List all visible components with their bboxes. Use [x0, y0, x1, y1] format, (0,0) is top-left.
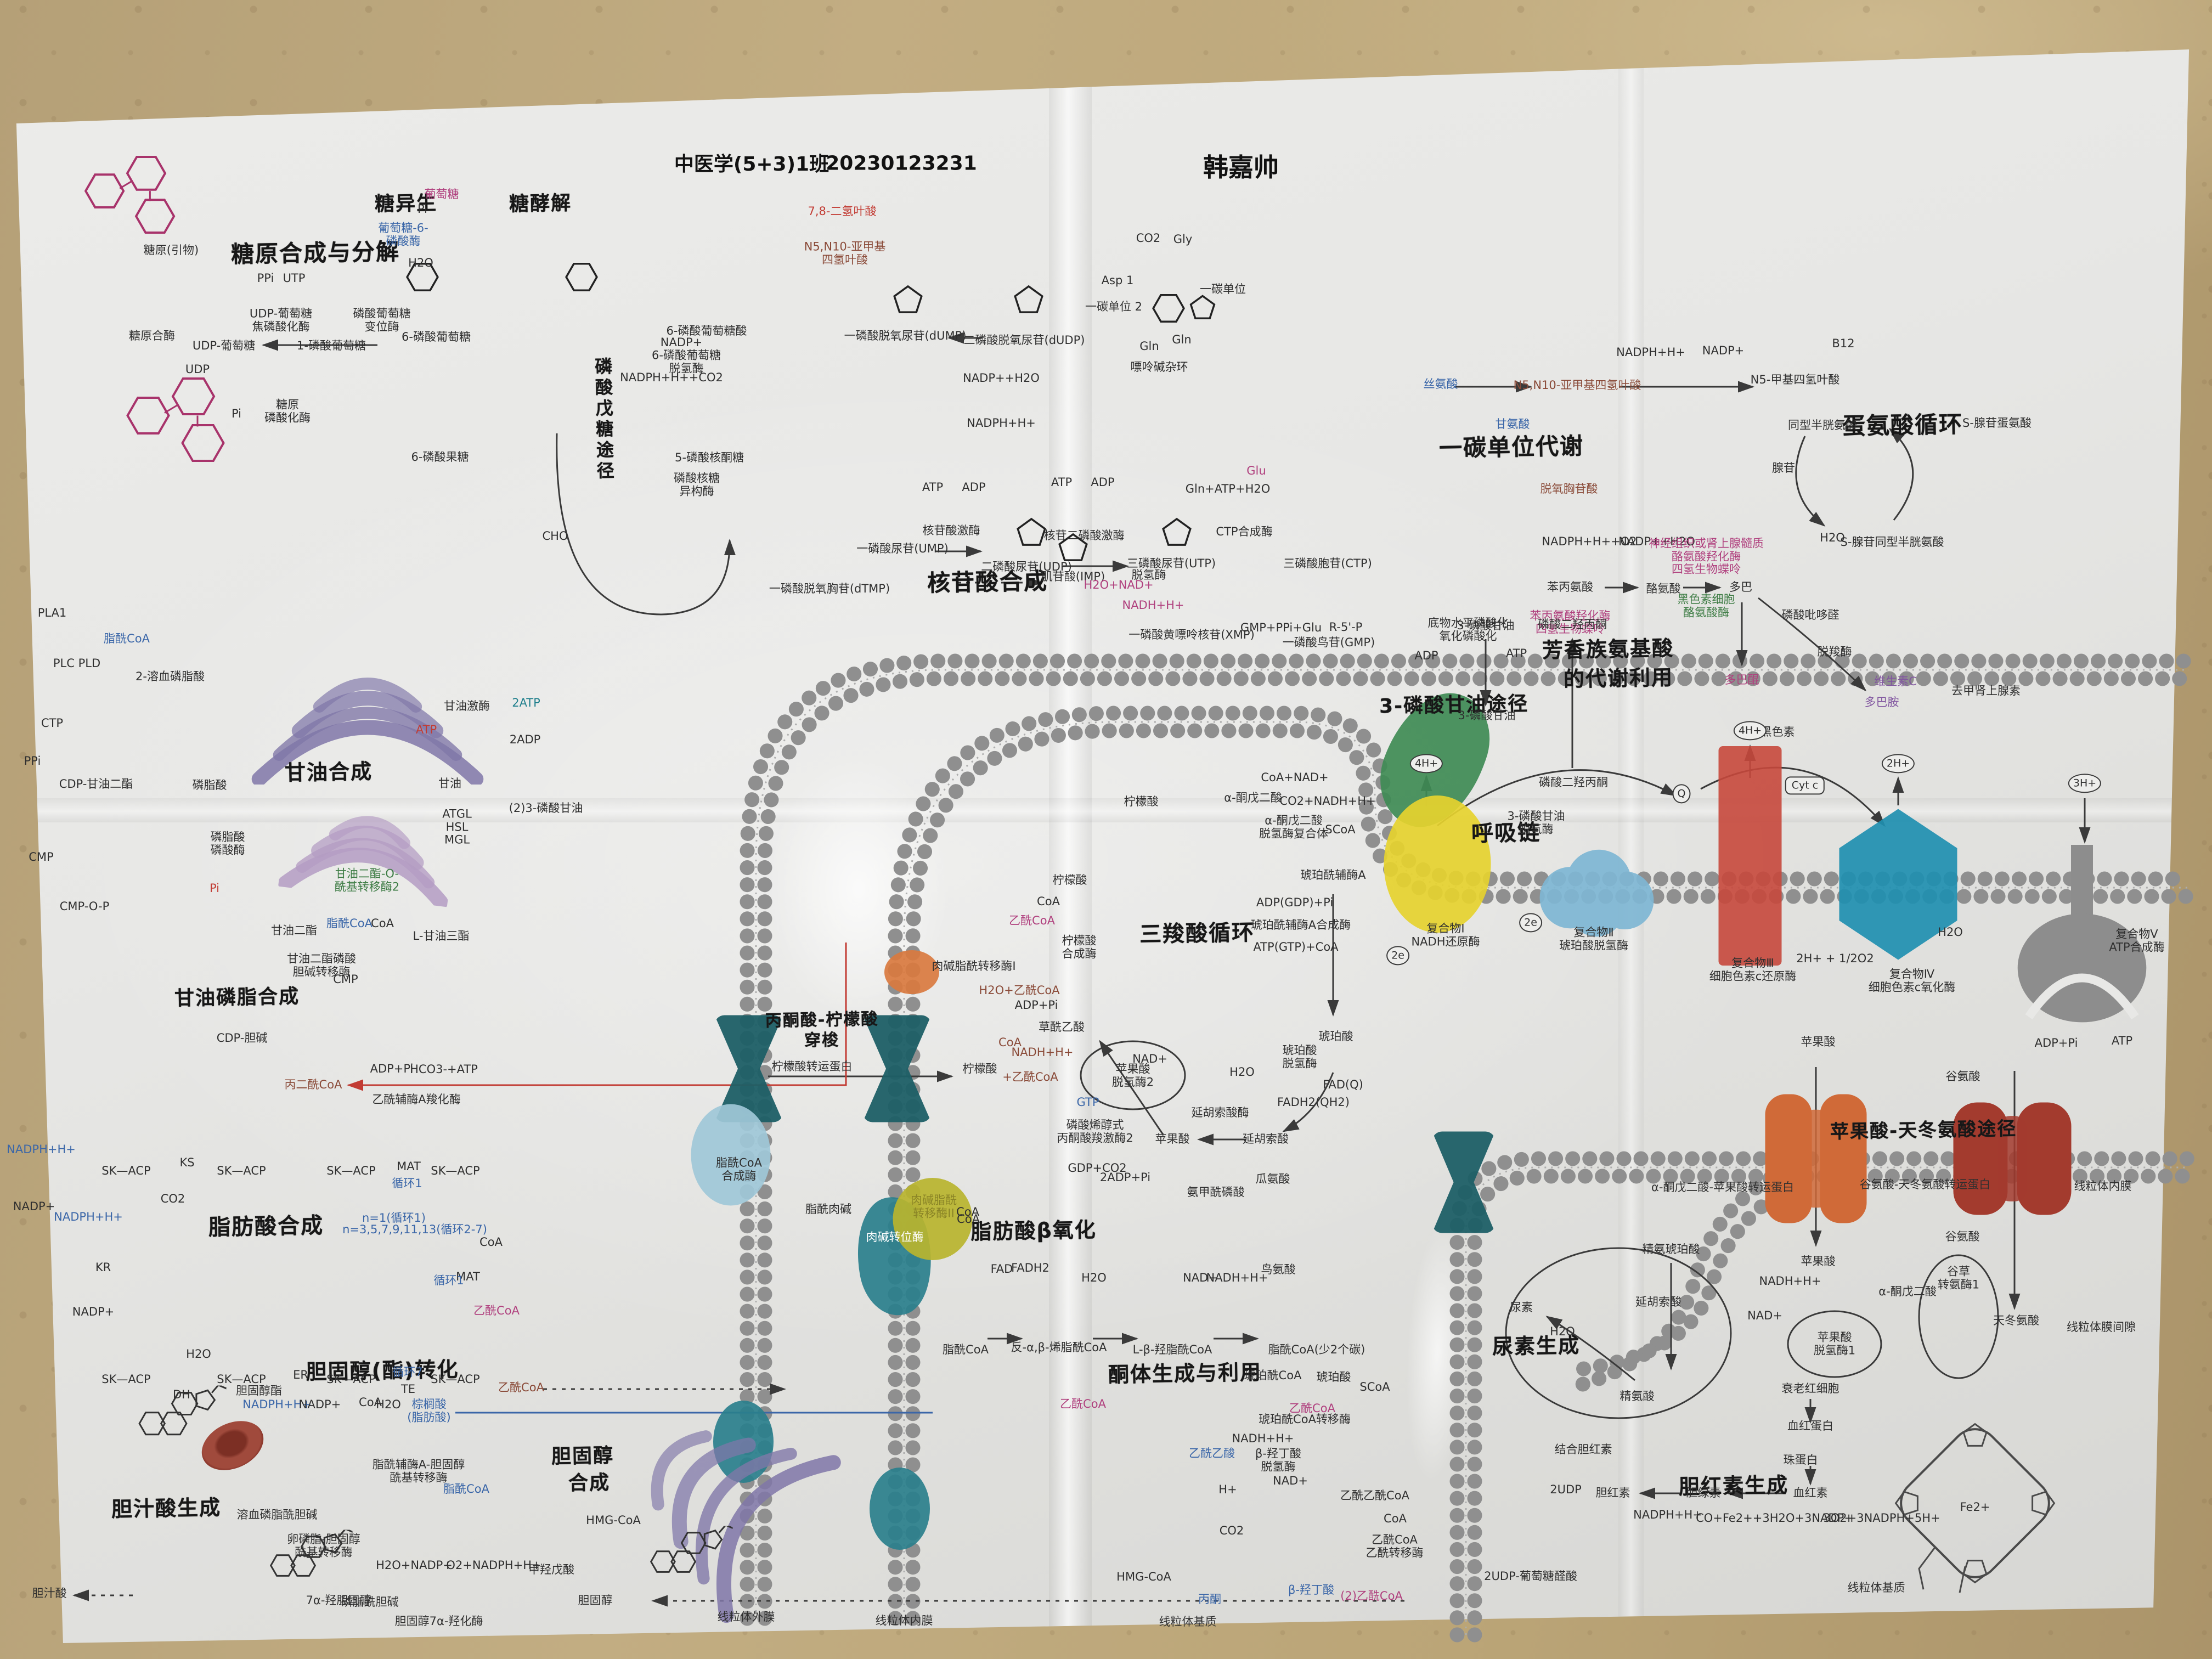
- diagram-label: 甘油二酯磷酸胆碱转移酶: [287, 952, 356, 978]
- diagram-label: 磷酸烯醇式丙酮酸羧激酶2: [1057, 1119, 1133, 1144]
- diagram-label: 2ADP: [510, 733, 541, 747]
- diagram-label: CoA: [1384, 1513, 1407, 1526]
- diagram-label: ADP: [962, 481, 985, 494]
- diagram-label: 瓜氨酸: [1256, 1173, 1290, 1186]
- diagram-label: 多巴: [1729, 581, 1752, 594]
- diagram-label: 复合物Ⅳ细胞色素c氧化酶: [1869, 968, 1956, 994]
- diagram-label: 3-磷酸甘油脱氢酶: [1508, 810, 1565, 836]
- diagram-label: NADPH+H++CO2: [620, 371, 723, 385]
- diagram-label: 丙二酰CoA: [285, 1079, 342, 1092]
- diagram-label: 柠檬酸: [963, 1063, 997, 1076]
- diagram-label: PLA1: [38, 607, 67, 620]
- diagram-label: H+: [1218, 1483, 1237, 1497]
- diagram-label: 乙酰辅酶A羧化酶: [372, 1093, 460, 1107]
- diagram-label: CDP-甘油二酯: [59, 778, 133, 791]
- section-heading: 穿梭: [804, 1026, 840, 1051]
- diagram-label: Cyt c: [1785, 776, 1825, 794]
- diagram-label: 1-磷酸葡萄糖: [297, 340, 366, 353]
- diagram-label: S-腺苷蛋氨酸: [1962, 417, 2032, 430]
- diagram-label: UDP: [185, 363, 210, 376]
- diagram-label: 乙酰CoA: [498, 1381, 544, 1395]
- diagram-label: 脂酰CoA: [943, 1344, 989, 1357]
- diagram-label: 乙酰CoA: [1060, 1398, 1106, 1411]
- diagram-label: FADH2(QH2): [1277, 1096, 1350, 1109]
- diagram-label: 甘油二酯-O-酰基转移酶2: [335, 867, 399, 893]
- diagram-label: CoA: [957, 1213, 980, 1226]
- diagram-label: ATP: [1051, 476, 1072, 489]
- diagram-label: KS: [179, 1156, 194, 1170]
- diagram-label: CO2: [1220, 1525, 1244, 1538]
- diagram-label: 葡萄糖-6-磷酸酶: [378, 222, 428, 247]
- diagram-label: SCoA: [1325, 823, 1355, 837]
- diagram-label: GTP: [1076, 1096, 1099, 1109]
- diagram-label: 线粒体内膜: [876, 1615, 933, 1628]
- diagram-label: 乙酰CoA: [473, 1305, 520, 1318]
- diagram-label: α-酮戊二酸-苹果酸转运蛋白: [1651, 1181, 1794, 1194]
- diagram-label: Pi: [417, 203, 427, 216]
- diagram-label: 3H+: [2068, 774, 2101, 793]
- diagram-label: 溶血磷脂酰胆碱: [237, 1509, 318, 1522]
- diagram-label: NAD+: [1747, 1310, 1782, 1323]
- diagram-label: 糖原合酶: [129, 330, 175, 343]
- diagram-label: ADP+Pi: [2035, 1037, 2078, 1050]
- diagram-label: 6-磷酸果糖: [411, 451, 469, 464]
- diagram-label: H2O+NAD+: [1084, 579, 1153, 592]
- diagram-label: H2O: [408, 257, 433, 270]
- diagram-label: 胆固醇: [578, 1594, 613, 1607]
- diagram-label: 脂酰CoA: [443, 1483, 489, 1496]
- diagram-label: N5,N10-亚甲基四氢叶酸: [804, 240, 886, 266]
- diagram-label: NADH+H+: [1206, 1272, 1268, 1285]
- diagram-label: SK—ACP: [326, 1373, 375, 1386]
- diagram-label: NADH+H+: [1759, 1275, 1821, 1288]
- diagram-label: ER: [293, 1369, 308, 1382]
- diagram-label: NADPH+H+: [7, 1143, 76, 1156]
- diagram-label: α-酮戊二酸脱氢酶复合体: [1259, 814, 1328, 840]
- diagram-label: 一磷酸鸟苷(GMP): [1283, 636, 1375, 650]
- section-heading: 糖原合成与分解: [230, 233, 400, 269]
- diagram-label: 柠檬酸: [1124, 795, 1159, 809]
- diagram-label: 琥珀酸: [1317, 1371, 1351, 1384]
- diagram-label: Pi: [232, 408, 241, 421]
- diagram-label: 2-溶血磷脂酸: [136, 670, 205, 684]
- section-heading: 的代谢利用: [1564, 661, 1674, 692]
- diagram-label: 柠檬酸: [1053, 874, 1087, 887]
- diagram-label: 卵磷脂-胆固醇酰基转移酶: [287, 1533, 360, 1559]
- diagram-label: HMG-CoA: [1116, 1571, 1171, 1584]
- diagram-label: 延胡索酸: [1243, 1133, 1289, 1146]
- diagram-label: 苹果酸脱氢酶2: [1112, 1063, 1154, 1088]
- diagram-label: 核苷酸激酶: [923, 524, 980, 538]
- diagram-label: Glu: [1246, 465, 1266, 478]
- diagram-label: 谷氨酸: [1946, 1070, 1980, 1084]
- diagram-label: CMP-O-P: [60, 900, 110, 913]
- diagram-label: 脂酰CoA: [326, 917, 373, 930]
- diagram-label: 3O2+3NADPH+5H+: [1823, 1512, 1940, 1525]
- diagram-label: 尿素: [1510, 1301, 1533, 1314]
- diagram-label: 2ADP+Pi: [1100, 1171, 1150, 1184]
- diagram-label: 2ATP: [512, 697, 540, 710]
- diagram-label: 多巴胺: [1865, 696, 1899, 709]
- diagram-label: FADH2: [1011, 1262, 1049, 1275]
- diagram-label: ATP: [922, 481, 943, 494]
- diagram-label: SK—ACP: [101, 1373, 150, 1386]
- diagram-label: NADPH+H+: [1633, 1509, 1702, 1522]
- section-heading: 苹果酸-天冬氨酸途径: [1830, 1114, 2017, 1144]
- diagram-label: 2e: [1386, 946, 1409, 965]
- diagram-label: CTP合成酶: [1216, 526, 1272, 539]
- diagram-label: 一碳单位 2: [1085, 301, 1142, 314]
- diagram-label: 胆红素: [1596, 1487, 1630, 1500]
- diagram-label: 循环1: [392, 1177, 422, 1190]
- diagram-label: FAD(Q): [1323, 1079, 1363, 1092]
- diagram-label: HMG-CoA: [586, 1514, 641, 1527]
- diagram-label: 乙酰乙酸: [1189, 1447, 1235, 1460]
- diagram-label: CoA: [998, 1036, 1022, 1049]
- diagram-label: 胆固醇酯: [236, 1385, 282, 1398]
- diagram-label: 血红蛋白: [1787, 1420, 1833, 1433]
- diagram-label: NADH+H+: [1122, 599, 1184, 612]
- diagram-label: 2H+ + 1/2O2: [1796, 952, 1874, 966]
- diagram-label: 5-磷酸核酮糖: [675, 452, 744, 465]
- diagram-label: Gly: [1173, 233, 1193, 246]
- diagram-label: CO2: [161, 1193, 185, 1206]
- diagram-label: 苹果酸: [1155, 1133, 1190, 1146]
- diagram-label: 谷氨酸-天冬氨酸转运蛋白: [1860, 1178, 1991, 1192]
- diagram-label: CO2: [1136, 232, 1161, 245]
- diagram-label: CoA: [371, 917, 394, 930]
- diagram-label: B12: [1832, 337, 1854, 351]
- diagram-label: 3-磷酸甘油: [1458, 709, 1516, 723]
- diagram-label: H2O: [1550, 1325, 1575, 1339]
- diagram-label: 一碳单位: [1200, 283, 1246, 296]
- diagram-label: 草酰乙酸: [1039, 1021, 1085, 1034]
- diagram-label: 7,8-二氢叶酸: [808, 205, 877, 218]
- section-heading: 甘油合成: [285, 754, 373, 786]
- diagram-label: 2e: [1519, 913, 1542, 932]
- diagram-label: NADPH+H+: [967, 417, 1036, 430]
- diagram-label: 乙酰乙酰CoA: [1340, 1489, 1409, 1503]
- section-heading: 芳香族氨基酸: [1542, 631, 1674, 663]
- diagram-label: NADP+: [1702, 345, 1745, 358]
- diagram-label: 腺苷: [1772, 462, 1795, 475]
- diagram-label: 琥珀酰辅酶A: [1300, 869, 1365, 882]
- diagram-label: 一磷酸尿苷(UMP): [856, 543, 949, 556]
- section-heading: 脂肪酸β氧化: [970, 1213, 1097, 1245]
- diagram-label: α-酮戊二酸: [1878, 1285, 1936, 1299]
- diagram-label: 血红素: [1793, 1487, 1828, 1500]
- diagram-label: NADP++H2O: [963, 372, 1040, 385]
- diagram-label: 胆绿素: [1686, 1487, 1721, 1500]
- section-heading: 胆汁酸生成: [111, 1491, 222, 1522]
- diagram-label: 二磷酸脱氧尿苷(dUDP): [964, 334, 1085, 347]
- diagram-label: 甘油激酶: [444, 700, 490, 713]
- diagram-label: 谷草转氨酶1: [1938, 1265, 1979, 1291]
- diagram-label: 嘌呤碱杂环: [1131, 361, 1188, 374]
- diagram-label: H2O: [376, 1398, 401, 1412]
- diagram-label: ADP(GDP)+Pi: [1256, 896, 1333, 910]
- diagram-label: CHO: [543, 530, 568, 543]
- diagram-label: 精氨酸: [1620, 1390, 1655, 1403]
- diagram-label: 胆固醇7α-羟化酶: [395, 1615, 483, 1628]
- diagram-label: 2H+: [1882, 754, 1915, 773]
- diagram-label: 维生素C: [1874, 675, 1917, 689]
- diagram-label: R-5'-P: [1329, 621, 1363, 634]
- diagram-label: 鸟氨酸: [1261, 1263, 1296, 1277]
- diagram-label: +乙酰CoA: [1002, 1071, 1058, 1084]
- diagram-label: 6-磷酸葡萄糖: [402, 331, 471, 344]
- diagram-label: KR: [95, 1261, 111, 1274]
- diagram-label: NADP+: [13, 1200, 55, 1214]
- diagram-label: 苹果酸: [1801, 1255, 1836, 1268]
- diagram-label: CO2+NADH+H+: [1279, 795, 1375, 808]
- diagram-label: 葡萄糖: [425, 188, 459, 201]
- diagram-label: H2O: [1081, 1272, 1107, 1285]
- diagram-label: ADP: [1091, 476, 1114, 489]
- diagram-label: (2)乙酰CoA: [1340, 1590, 1403, 1603]
- diagram-label: H2O: [186, 1348, 211, 1361]
- diagram-label: 磷酸二羟丙酮: [1538, 618, 1607, 631]
- section-heading: 酮体生成与利用: [1108, 1355, 1262, 1388]
- section-heading: 蛋氨酸循环: [1842, 406, 1963, 442]
- diagram-label: L-甘油三酯: [413, 930, 470, 943]
- diagram-label: GMP+PPi+Glu: [1240, 622, 1322, 635]
- diagram-label: 琥珀酰CoA: [1244, 1369, 1302, 1383]
- diagram-label: 磷酸二羟丙酮: [1539, 776, 1608, 789]
- diagram-label: CDP-胆碱: [217, 1032, 268, 1045]
- diagram-label: 氨甲酰磷酸: [1187, 1186, 1245, 1199]
- diagram-label: 复合物Ⅱ琥珀酸脱氢酶: [1559, 926, 1628, 952]
- diagram-label: 线粒体膜间隙: [2067, 1321, 2136, 1334]
- diagram-label: ATP: [1506, 647, 1527, 661]
- diagram-label: SK—ACP: [101, 1165, 150, 1178]
- diagram-label: 循环1: [433, 1274, 464, 1288]
- diagram-label: 丝氨酸: [1424, 378, 1458, 391]
- diagram-label: 核苷二磷酸激酶: [1044, 529, 1125, 543]
- diagram-label: ATP: [416, 724, 437, 737]
- diagram-label: 黑色素细胞酪氨酸酶: [1678, 593, 1735, 619]
- diagram-label: 磷脂酸磷酸酶: [211, 831, 245, 856]
- diagram-label: SK—ACP: [326, 1165, 375, 1178]
- diagram-label: PLC PLD: [53, 657, 100, 670]
- diagram-label: 甘油: [438, 777, 461, 791]
- diagram-label: 神经组织或肾上腺髓质酪氨酸羟化酶四氢生物蝶呤: [1649, 538, 1764, 577]
- diagram-label: α-酮戊二酸: [1224, 792, 1282, 805]
- diagram-label: UDP-葡萄糖焦磷酸化酶: [250, 307, 312, 333]
- diagram-label: 延胡索酸: [1635, 1296, 1681, 1309]
- diagram-label: 精氨琥珀酸: [1643, 1243, 1700, 1256]
- diagram-label: 天冬氨酸: [1993, 1314, 2039, 1328]
- diagram-label: 脂酰肉碱: [805, 1203, 851, 1216]
- diagram-label: 线粒体基质: [1848, 1582, 1905, 1595]
- diagram-label: 3-磷酸甘油: [1457, 619, 1515, 633]
- diagram-label: CMP: [29, 851, 53, 864]
- diagram-label: 磷脂酸: [193, 779, 227, 792]
- diagram-label: CTP: [41, 717, 63, 730]
- diagram-label: Asp 1: [1102, 274, 1134, 287]
- diagram-label: 复合物ⅠNADH还原酶: [1411, 922, 1480, 948]
- diagram-label: 苯丙氨酸: [1547, 581, 1593, 594]
- diagram-label: H2O: [1229, 1066, 1255, 1079]
- diagram-label: 脂酰CoA合成酶: [716, 1156, 762, 1182]
- diagram-label: 乙酰CoA乙酰转移酶: [1366, 1533, 1424, 1559]
- diagram-label: β-羟丁酸脱氢酶: [1255, 1447, 1301, 1473]
- diagram-label: TE: [401, 1383, 415, 1396]
- diagram-label: 苹果酸: [1801, 1036, 1836, 1049]
- diagram-label: (2)3-磷酸甘油: [509, 802, 583, 815]
- diagram-label: ATP(GTP)+CoA: [1253, 941, 1338, 954]
- labels-layer: 糖原合成与分解糖异生糖酵解磷酸戊糖途径核苷酸合成一碳单位代谢蛋氨酸循环芳香族氨基…: [0, 0, 2212, 1659]
- diagram-label: NADPH+H+: [1616, 346, 1685, 359]
- photo-of-metabolic-poster: 韩嘉帅 中医学(5+3)1班 20230123231 糖原合成与分解糖异生糖酵解…: [0, 0, 2212, 1659]
- diagram-label: Q: [1673, 784, 1691, 803]
- diagram-label: CoA+NAD+: [1261, 771, 1328, 785]
- diagram-label: SK—ACP: [431, 1373, 479, 1386]
- diagram-label: n=3,5,7,9,11,13(循环2-7): [342, 1223, 487, 1237]
- section-heading: 糖酵解: [509, 187, 572, 217]
- diagram-label: ADP+Pi: [370, 1063, 414, 1076]
- diagram-label: 珠蛋白: [1784, 1454, 1818, 1467]
- diagram-label: NADP+: [661, 336, 703, 349]
- diagram-label: 棕榈酸(脂肪酸): [407, 1398, 450, 1424]
- diagram-label: 延胡索酸酶: [1192, 1107, 1249, 1120]
- diagram-label: 三磷酸胞苷(CTP): [1283, 557, 1372, 571]
- diagram-label: 磷酸吡哆醛: [1782, 609, 1839, 622]
- section-heading: 脂肪酸合成: [208, 1207, 324, 1242]
- diagram-label: NADH+H+: [1232, 1432, 1294, 1446]
- section-heading: 甘油磷脂合成: [174, 980, 300, 1011]
- diagram-label: SCoA: [1359, 1381, 1390, 1394]
- diagram-label: H2O+NADP+: [376, 1559, 453, 1572]
- diagram-label: 柠檬酸合成酶: [1062, 934, 1097, 960]
- diagram-label: N5-甲基四氢叶酸: [1751, 374, 1840, 387]
- diagram-label: HCO3-+ATP: [410, 1063, 478, 1076]
- diagram-label: H2O+乙酰CoA: [979, 984, 1059, 997]
- diagram-label: Gln: [1139, 340, 1159, 353]
- diagram-label: SK—ACP: [217, 1373, 266, 1386]
- diagram-label: CoA: [479, 1236, 503, 1249]
- diagram-label: 肉碱转位酶: [866, 1231, 924, 1244]
- diagram-label: Gln: [1172, 334, 1191, 347]
- diagram-label: 结合胆红素: [1555, 1443, 1612, 1457]
- section-heading: 三羧酸循环: [1139, 915, 1255, 949]
- section-heading: 胆固醇: [551, 1440, 614, 1469]
- diagram-label: 循环7: [392, 1366, 422, 1379]
- diagram-label: ADP+Pi: [1015, 999, 1058, 1012]
- diagram-label: PPi: [24, 755, 41, 768]
- diagram-label: 线粒体基质: [1159, 1616, 1217, 1629]
- diagram-label: 糖原(引物): [144, 244, 199, 257]
- diagram-label: SK—ACP: [217, 1165, 266, 1178]
- diagram-label: 线粒体外膜: [718, 1611, 775, 1624]
- diagram-label: ATGLHSLMGL: [442, 808, 472, 847]
- diagram-label: N5,N10-亚甲基四氢叶酸: [1514, 379, 1641, 392]
- diagram-label: ADP: [1414, 650, 1438, 663]
- diagram-label: L-β-羟脂酰CoA: [1133, 1344, 1212, 1357]
- diagram-label: 柠檬酸转运蛋白: [772, 1060, 853, 1074]
- diagram-label: 琥珀酰辅酶A合成酶: [1251, 919, 1351, 932]
- diagram-label: 乙酰CoA: [1009, 915, 1055, 928]
- section-heading: 磷酸戊糖途径: [590, 357, 617, 483]
- diagram-label: 反-α,β-烯脂酰CoA: [1011, 1341, 1107, 1355]
- diagram-label: FAD: [991, 1263, 1013, 1276]
- diagram-label: Fe2+: [1960, 1501, 1990, 1514]
- diagram-label: NADPH+H+: [54, 1211, 123, 1224]
- diagram-label: 4H+: [1410, 754, 1443, 773]
- diagram-label: 2UDP-葡萄糖醛酸: [1484, 1570, 1577, 1583]
- diagram-label: 多巴醌: [1725, 674, 1759, 687]
- diagram-label: NAD+: [1273, 1475, 1308, 1488]
- diagram-label: 磷酸核糖异构酶: [674, 472, 720, 498]
- diagram-label: 脂酰辅酶A-胆固醇酰基转移酶: [373, 1458, 465, 1484]
- diagram-label: 谷氨酸: [1945, 1231, 1980, 1244]
- diagram-label: 胆汁酸: [32, 1587, 67, 1600]
- diagram-label: NADP+: [72, 1306, 115, 1319]
- diagram-label: 乙酰CoA: [1289, 1402, 1335, 1415]
- diagram-label: Pi: [210, 882, 219, 895]
- diagram-label: 肉碱脂酰转移酶I: [932, 960, 1015, 973]
- diagram-label: 2UDP: [1550, 1483, 1582, 1497]
- diagram-label: UTP: [283, 272, 306, 285]
- diagram-label: 一磷酸脱氧尿苷(dUMP): [844, 330, 967, 343]
- diagram-label: 7α-羟胆固醇: [306, 1594, 371, 1607]
- diagram-label: MAT: [397, 1160, 421, 1173]
- diagram-label: 肉碱脂酰转移酶II: [911, 1194, 957, 1220]
- diagram-label: 同型半胱氨酸: [1788, 419, 1857, 432]
- diagram-label: 衰老红细胞: [1782, 1383, 1839, 1396]
- diagram-label: 琥珀酸脱氢酶: [1283, 1044, 1317, 1070]
- diagram-label: 去甲肾上腺素: [1951, 685, 2021, 698]
- diagram-label: 一磷酸脱氧胸苷(dTMP): [769, 583, 890, 596]
- section-heading: 一碳单位代谢: [1438, 427, 1584, 464]
- diagram-label: 甘氨酸: [1496, 418, 1530, 431]
- diagram-label: S-腺苷同型半胱氨酸: [1841, 536, 1944, 549]
- diagram-label: 一磷酸黄嘌呤核苷(XMP): [1128, 629, 1255, 642]
- diagram-label: O2+NADPH+H+: [446, 1559, 541, 1572]
- diagram-label: H2O: [1938, 926, 1963, 939]
- diagram-label: DH: [173, 1389, 190, 1402]
- diagram-label: 线粒体内膜: [2074, 1180, 2132, 1193]
- diagram-label: 脱羧酶: [1818, 646, 1852, 659]
- diagram-label: 磷酸葡萄糖变位酶: [353, 307, 411, 333]
- diagram-label: 脂酰CoA(少2个碳): [1268, 1344, 1365, 1357]
- diagram-label: 复合物Ⅲ细胞色素c还原酶: [1709, 957, 1797, 983]
- diagram-label: Gln+ATP+H2O: [1186, 483, 1271, 496]
- diagram-label: UDP-葡萄糖: [193, 340, 255, 353]
- diagram-label: 苹果酸脱氢酶1: [1814, 1331, 1855, 1357]
- diagram-label: ATP: [2112, 1035, 2132, 1048]
- diagram-label: 酪氨酸: [1646, 583, 1681, 596]
- diagram-label: NADP+: [299, 1398, 341, 1412]
- diagram-label: CoA: [1037, 895, 1060, 909]
- diagram-label: 脱氧胸苷酸: [1541, 483, 1598, 496]
- diagram-label: SK—ACP: [431, 1165, 479, 1178]
- diagram-label: 丙酮: [1198, 1593, 1221, 1606]
- diagram-label: PPi: [257, 272, 274, 285]
- diagram-label: 甘油二酯: [271, 924, 317, 938]
- diagram-label: 复合物ⅤATP合成酶: [2109, 928, 2164, 953]
- diagram-label: 琥珀酰CoA转移酶: [1259, 1413, 1351, 1426]
- diagram-label: 脂酰CoA: [104, 633, 150, 646]
- diagram-label: β-羟丁酸: [1288, 1584, 1334, 1597]
- section-heading: 合成: [568, 1466, 611, 1496]
- diagram-label: 琥珀酸: [1319, 1030, 1353, 1043]
- diagram-label: 糖原磷酸化酶: [264, 398, 311, 424]
